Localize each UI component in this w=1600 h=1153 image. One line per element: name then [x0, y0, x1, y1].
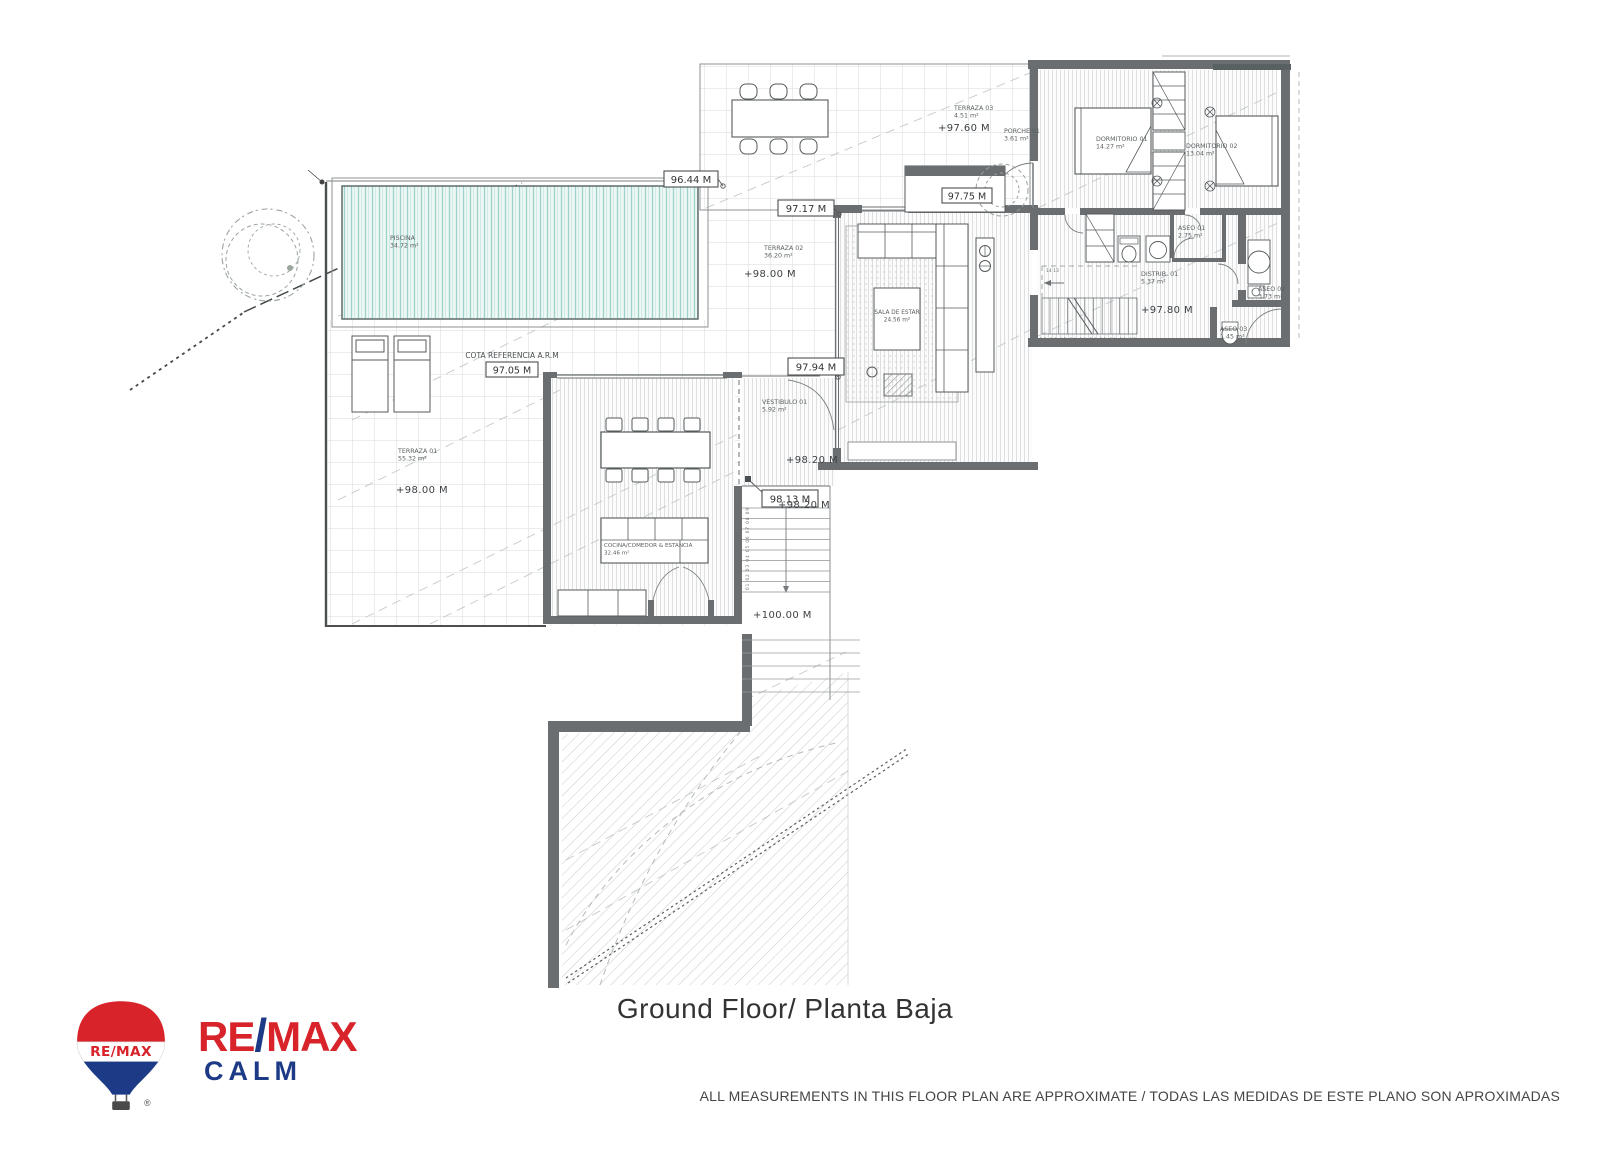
mark-9760: +97.60 M — [938, 123, 990, 134]
room-terraza3-area: 4.51 m² — [954, 113, 979, 120]
exterior-stair: 01 02 03 04 05 06 07 08 09 12 11 10 — [742, 486, 860, 700]
room-dorm2-area: 13.04 m² — [1186, 151, 1215, 158]
mark-9820-b: +98.20 M — [778, 500, 830, 511]
room-cocina-area: 32.46 m² — [604, 550, 629, 557]
remax-wordmark: RE/MAX — [198, 1008, 356, 1062]
room-aseo2-name: ASEO 02 — [1258, 286, 1285, 293]
floor-plan-drawing: 01 02 03 04 05 06 07 08 09 12 11 10 14 1… — [0, 0, 1600, 1153]
room-aseo3-name: ASEO 03 — [1220, 326, 1247, 333]
elevation-box-9705: 97.05 M — [493, 366, 531, 377]
room-vestibulo-area: 5.92 m² — [762, 407, 787, 414]
room-porche-name: PORCHE 01 — [1004, 128, 1040, 135]
mark-10000: +100.00 M — [753, 610, 812, 621]
elevation-box-9775: 97.75 M — [948, 192, 986, 203]
disclaimer-text: ALL MEASUREMENTS IN THIS FLOOR PLAN ARE … — [700, 1088, 1560, 1104]
office-name: CALM — [204, 1056, 302, 1087]
room-vestibulo-name: VESTIBULO 01 — [762, 399, 807, 406]
registered-mark: ® — [144, 1098, 151, 1108]
balloon-wordmark: RE/MAX — [90, 1044, 152, 1060]
tree — [222, 209, 314, 301]
room-terraza1-name: TERRAZA 01 — [397, 448, 437, 455]
room-terraza1-area: 55.32 m² — [398, 456, 427, 463]
wordmark-re: RE — [198, 1013, 254, 1060]
mark-9800-terr2: +98.00 M — [744, 269, 796, 280]
room-aseo1-name: ASEO 01 — [1178, 225, 1205, 232]
garden-slope-hatch — [562, 672, 848, 985]
elevation-box-9717: 97.17 M — [786, 204, 826, 215]
interior-stair-upper-numbers: 14 13 — [1046, 268, 1059, 274]
mark-9780: +97.80 M — [1141, 305, 1193, 316]
room-piscina-area: 34.72 m² — [390, 243, 419, 250]
exterior-stair-upper-numbers: 01 02 03 04 05 06 07 08 09 — [745, 508, 750, 590]
room-sala-name: SALA DE ESTAR — [874, 310, 919, 316]
mark-9820-a: +98.20 M — [786, 455, 838, 466]
room-dorm1-area: 14.27 m² — [1096, 144, 1125, 151]
room-terraza2-name: TERRAZA 02 — [763, 245, 803, 252]
wordmark-slash: / — [254, 1009, 266, 1061]
page-title: Ground Floor/ Planta Baja — [617, 993, 953, 1025]
cota-referencia-note: COTA REFERENCIA A.R.M — [465, 351, 558, 360]
room-porche-area: 3.61 m² — [1004, 136, 1029, 143]
pool — [342, 186, 698, 319]
kitchen-floor — [549, 378, 735, 616]
elevation-box-9644: 96.44 M — [671, 175, 711, 186]
room-aseo3-area: 1.45 m² — [1220, 334, 1245, 341]
remax-logo: RE/MAX ® RE/MAX CALM — [58, 994, 388, 1124]
mark-9800-terr1: +98.00 M — [396, 485, 448, 496]
room-piscina-name: PISCINA — [390, 235, 416, 242]
room-distrib-area: 5.37 m² — [1141, 279, 1166, 286]
remax-balloon-icon: RE/MAX — [66, 998, 176, 1110]
floor-plan-page: 01 02 03 04 05 06 07 08 09 12 11 10 14 1… — [0, 0, 1600, 1153]
room-distrib-name: DISTRIB. 01 — [1141, 271, 1178, 278]
room-terraza3-name: TERRAZA 03 — [953, 105, 993, 112]
room-terraza2-area: 36.20 m² — [764, 253, 793, 260]
room-dorm1-name: DORMITORIO 01 — [1096, 136, 1147, 143]
room-aseo1-area: 2.75 m² — [1178, 233, 1203, 240]
room-dorm2-name: DORMITORIO 02 — [1186, 143, 1237, 150]
room-aseo2-area: 3.73 m² — [1258, 294, 1283, 301]
room-cocina-name: COCINA/COMEDOR & ESTANCIA — [604, 543, 693, 549]
elevation-box-9794: 97.94 M — [796, 363, 836, 374]
interior-stair-lower-numbers: 15 16 17 18 19 20 21 10 11 12 — [1040, 337, 1136, 342]
room-sala-area: 24.56 m² — [884, 317, 910, 324]
wordmark-max: MAX — [266, 1013, 356, 1060]
